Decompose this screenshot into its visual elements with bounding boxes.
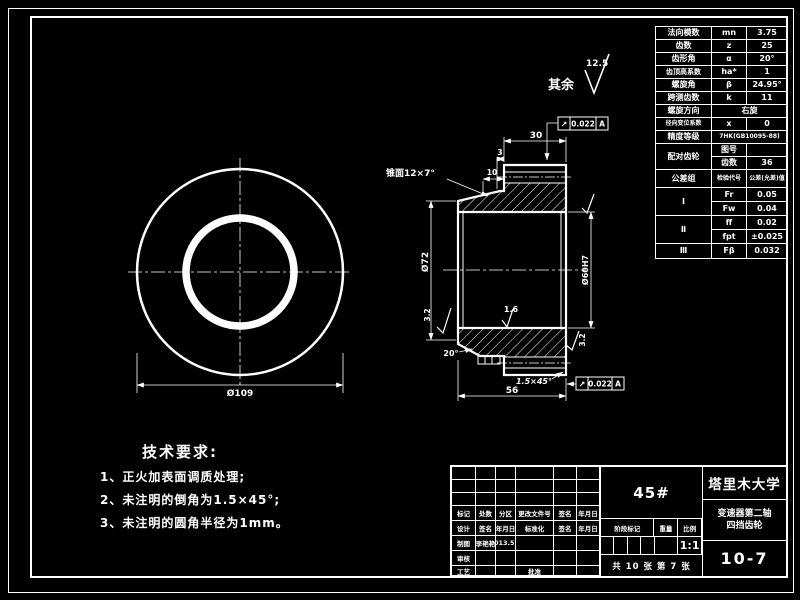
param-value: 3.75 bbox=[747, 27, 787, 40]
material-spec: 45# bbox=[601, 467, 702, 519]
label-zone: 分区 bbox=[496, 506, 516, 521]
title-block-right: 塔里木大学 变速器第二轴 四挡齿轮 10-7 bbox=[702, 467, 786, 576]
param-value bbox=[747, 144, 787, 157]
part-name-line2: 四挡齿轮 bbox=[726, 520, 762, 532]
roughness-check-icon bbox=[582, 194, 594, 213]
tolerance-frame-top: ↗ 0.022 A bbox=[558, 117, 608, 130]
param-value: 0 bbox=[747, 118, 787, 131]
label-signature: 签名 bbox=[476, 521, 496, 536]
tolerance-value: ±0.025 bbox=[747, 230, 787, 244]
param-value: 1 bbox=[747, 66, 787, 79]
label-signature: 签名 bbox=[554, 521, 577, 536]
gear-section-view: 30 3 10 锥面12×7° Ø72 3.2 20° 1.6 bbox=[386, 117, 624, 401]
runout-symbol-icon: ↗ bbox=[579, 380, 586, 389]
param-symbol: 图号 bbox=[712, 144, 747, 157]
part-name-line1: 变速器第二轴 bbox=[717, 508, 771, 520]
label-standardization: 标准化 bbox=[516, 521, 554, 536]
organization-name: 塔里木大学 bbox=[703, 467, 786, 500]
tolerance-col-header: 公差(允差)值 bbox=[747, 170, 787, 188]
tolerance-group: Ⅱ bbox=[656, 216, 712, 244]
label-weight: 重量 bbox=[654, 519, 678, 536]
drafter-name: 李艳艳 bbox=[476, 536, 496, 551]
label-count: 处数 bbox=[476, 506, 496, 521]
dim-outer-diameter: Ø109 bbox=[227, 388, 253, 399]
dim-rim-width: 30 bbox=[530, 131, 543, 141]
drafter-date: 2013.5.6 bbox=[496, 536, 516, 551]
param-symbol: 齿数 bbox=[712, 157, 747, 170]
part-name: 变速器第二轴 四挡齿轮 bbox=[703, 500, 786, 541]
param-symbol: α bbox=[712, 53, 747, 66]
label-signature: 签名 bbox=[554, 506, 577, 521]
dog-teeth-detail bbox=[478, 356, 500, 364]
tech-requirement-item: 2、未注明的倒角为1.5×45°; bbox=[100, 491, 360, 508]
tolerance-value: 0.04 bbox=[747, 202, 787, 216]
roughness-right-value: 3.2 bbox=[578, 333, 587, 346]
label-checker: 审核 bbox=[452, 551, 476, 566]
dim-total-width: 56 bbox=[506, 386, 519, 396]
param-value: 右旋 bbox=[712, 105, 787, 118]
label-stage-mark: 阶段标记 bbox=[601, 519, 654, 536]
param-symbol: ha* bbox=[712, 66, 747, 79]
label-change-doc: 更改文件号 bbox=[516, 506, 554, 521]
param-name: 配对齿轮 bbox=[656, 144, 712, 170]
dim-step10: 10 bbox=[487, 168, 497, 177]
drawing-number: 10-7 bbox=[703, 541, 786, 575]
tolerance-value: 0.022 bbox=[588, 380, 612, 389]
param-value: 7HK(GB10095-88) bbox=[712, 131, 787, 144]
tolerance-symbol: Fβ bbox=[712, 244, 747, 258]
param-name: 齿形角 bbox=[656, 53, 712, 66]
dim-bore-diameter: Ø60H7 bbox=[580, 255, 590, 285]
param-value: 36 bbox=[747, 157, 787, 170]
param-value: 20° bbox=[747, 53, 787, 66]
param-name: 螺旋角 bbox=[656, 79, 712, 92]
label-date: 年月日 bbox=[577, 506, 600, 521]
label-scale: 比例 bbox=[678, 519, 702, 536]
tolerance-value: 0.022 bbox=[571, 120, 595, 129]
dim-step3: 3 bbox=[497, 148, 502, 157]
label-design: 设计 bbox=[452, 521, 476, 536]
tolerance-symbol: Fw bbox=[712, 202, 747, 216]
engineering-drawing-sheet: Ø109 其余 12.5 bbox=[0, 0, 800, 600]
param-symbol: k bbox=[712, 92, 747, 105]
param-symbol: z bbox=[712, 40, 747, 53]
tolerance-value: 0.02 bbox=[747, 216, 787, 230]
hatch-upper-hub bbox=[458, 191, 504, 212]
tolerance-symbol: Fr bbox=[712, 188, 747, 202]
param-name: 精度等级 bbox=[656, 131, 712, 144]
datum-letter: A bbox=[599, 120, 605, 129]
tolerance-value: 0.032 bbox=[747, 244, 787, 258]
param-value: 24.95° bbox=[747, 79, 787, 92]
param-name: 齿顶高系数 bbox=[656, 66, 712, 79]
title-block-revision-grid: 标记 处数 分区 更改文件号 签名 年月日 设计 签名 年月日 标准化 签名 年… bbox=[452, 467, 600, 576]
param-value: 25 bbox=[747, 40, 787, 53]
tolerance-group: Ⅲ bbox=[656, 244, 712, 258]
label-date: 年月日 bbox=[496, 521, 516, 536]
param-name: 径向变位系数 bbox=[656, 118, 712, 131]
label-approve: 批准 bbox=[516, 566, 554, 576]
default-roughness-note: 其余 12.5 bbox=[548, 54, 609, 93]
tolerance-value: 0.05 bbox=[747, 188, 787, 202]
tolerance-frame-bottom: ↗ 0.022 A bbox=[576, 377, 624, 390]
param-symbol: x bbox=[712, 118, 747, 131]
roughness-check-icon bbox=[437, 308, 451, 333]
tolerance-col-header: 检验代号 bbox=[712, 170, 747, 188]
label-drafter: 制图 bbox=[452, 536, 476, 551]
param-name: 齿数 bbox=[656, 40, 712, 53]
runout-symbol-icon: ↗ bbox=[561, 120, 568, 129]
cone-surface-label: 锥面12×7° bbox=[386, 167, 435, 179]
param-symbol: β bbox=[712, 79, 747, 92]
angle-label: 20° bbox=[443, 349, 458, 358]
technical-requirements: 技术要求: 1、正火加表面调质处理; 2、未注明的倒角为1.5×45°; 3、未… bbox=[100, 441, 360, 531]
tolerance-symbol: fpt bbox=[712, 230, 747, 244]
gear-front-view: Ø109 bbox=[128, 158, 352, 399]
label-process: 工艺 bbox=[452, 566, 476, 576]
dim-hub-diameter: Ø72 bbox=[420, 252, 431, 272]
gear-parameter-table: 法向模数 mn 3.75 齿数 z 25 齿形角 α 20° 齿顶高系数 ha*… bbox=[655, 26, 788, 259]
tech-requirement-item: 1、正火加表面调质处理; bbox=[100, 468, 360, 485]
tolerance-symbol: ff bbox=[712, 216, 747, 230]
datum-letter: A bbox=[615, 380, 621, 389]
roughness-left-value: 3.2 bbox=[423, 308, 432, 321]
default-roughness-label: 其余 bbox=[548, 77, 575, 93]
label-mark: 标记 bbox=[452, 506, 476, 521]
tolerance-group-header: 公差组 bbox=[656, 170, 712, 188]
param-value: 11 bbox=[747, 92, 787, 105]
sheet-count: 共 10 张 第 7 张 bbox=[601, 555, 702, 576]
default-roughness-value: 12.5 bbox=[586, 59, 608, 69]
title-block: 标记 处数 分区 更改文件号 签名 年月日 设计 签名 年月日 标准化 签名 年… bbox=[450, 465, 788, 578]
tech-requirements-title: 技术要求: bbox=[142, 441, 360, 462]
tolerance-group: Ⅰ bbox=[656, 188, 712, 216]
hatch-upper-rim bbox=[504, 183, 566, 212]
param-name: 跨测齿数 bbox=[656, 92, 712, 105]
tech-requirement-item: 3、未注明的圆角半径为1mm。 bbox=[100, 514, 360, 531]
label-date: 年月日 bbox=[577, 521, 600, 536]
title-block-middle: 45# 阶段标记 重量 比例 1:1 共 10 张 第 7 张 bbox=[600, 467, 702, 576]
param-symbol: mn bbox=[712, 27, 747, 40]
chamfer-label: 1.5×45° bbox=[516, 377, 552, 386]
scale-value: 1:1 bbox=[678, 537, 702, 554]
param-name: 螺旋方向 bbox=[656, 105, 712, 118]
param-name: 法向模数 bbox=[656, 27, 712, 40]
